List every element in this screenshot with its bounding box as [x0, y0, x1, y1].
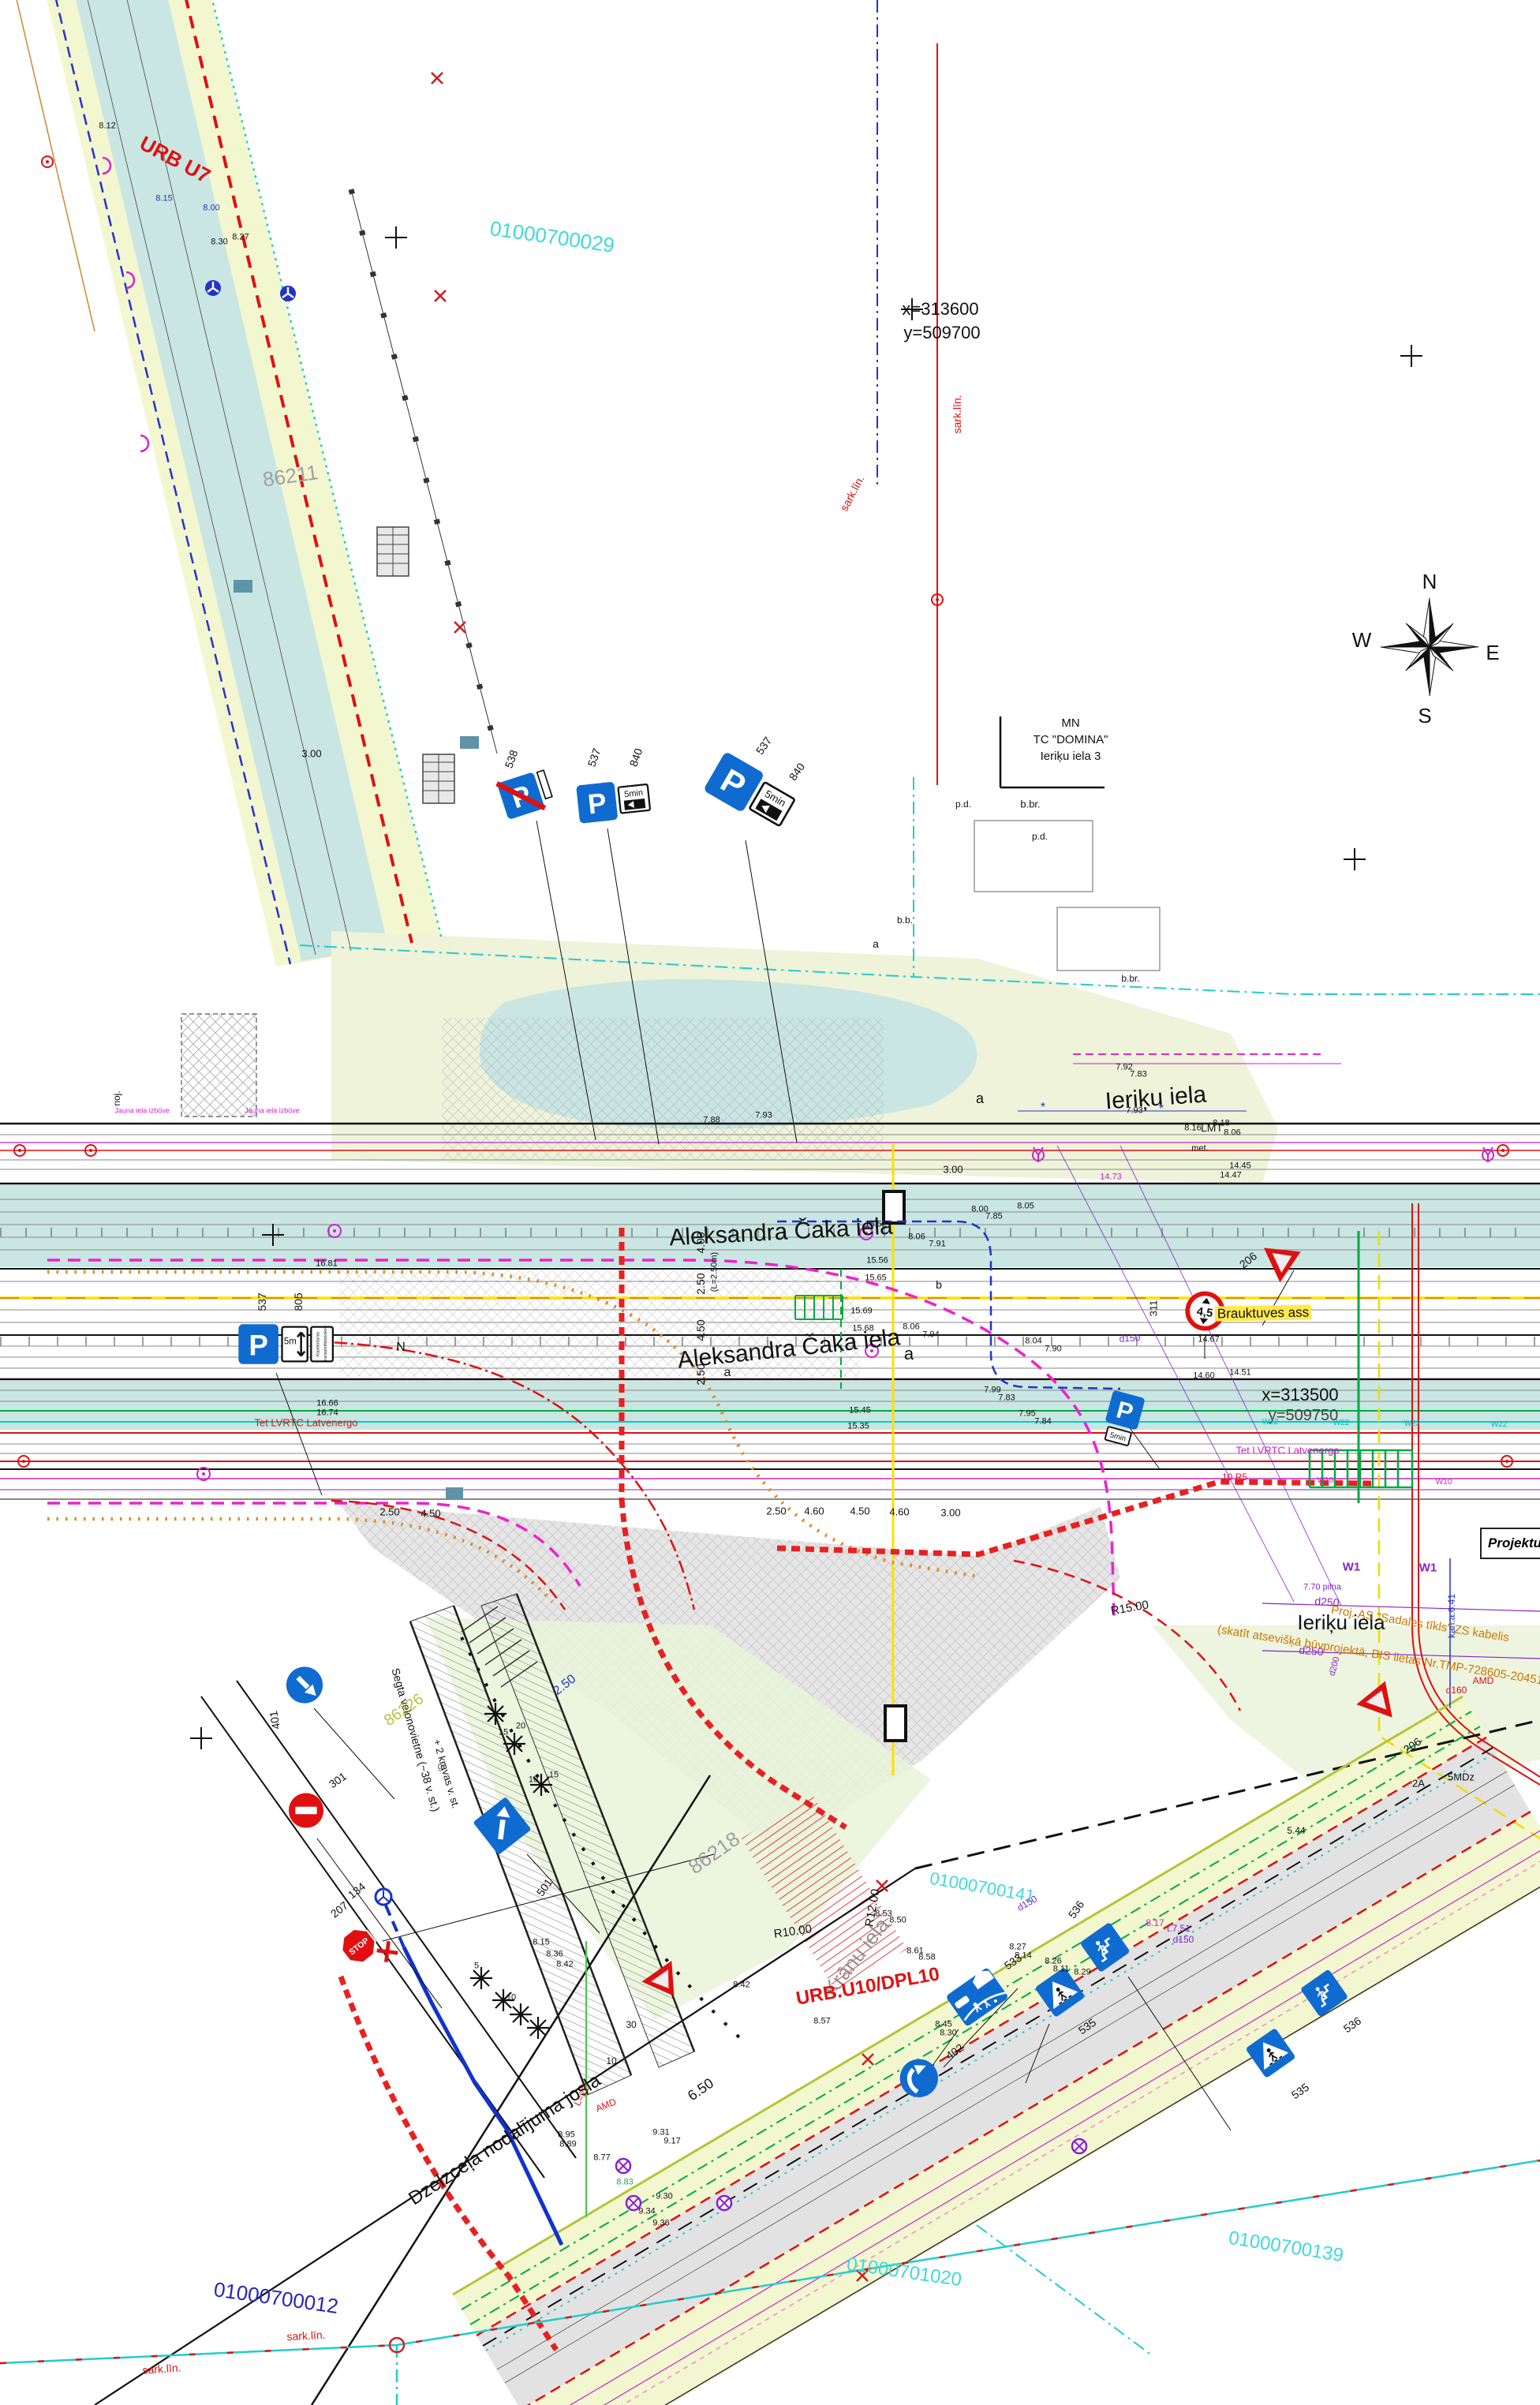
projektu-label: Projektu	[1488, 1535, 1540, 1551]
building-note-box: MN TC "DOMINA" Ieriķu iela 3	[1011, 716, 1130, 766]
traffic-plan-canvas: N E S W P P 5min P 5min P 5m	[0, 0, 1540, 2405]
compass-rose: N E S W	[1352, 570, 1500, 727]
compass-n: N	[1422, 570, 1437, 593]
compass-e: E	[1486, 641, 1499, 664]
plan-drawing: N E S W	[0, 0, 1540, 2405]
projektu-title-box: Projektu	[1480, 1528, 1540, 1559]
building-note-line3: Ieriķu iela 3	[1011, 750, 1130, 763]
compass-s: S	[1418, 704, 1431, 727]
compass-w: W	[1352, 628, 1372, 652]
building-note-line2: TC "DOMINA"	[1011, 733, 1130, 746]
building-note-line1: MN	[1011, 716, 1130, 730]
